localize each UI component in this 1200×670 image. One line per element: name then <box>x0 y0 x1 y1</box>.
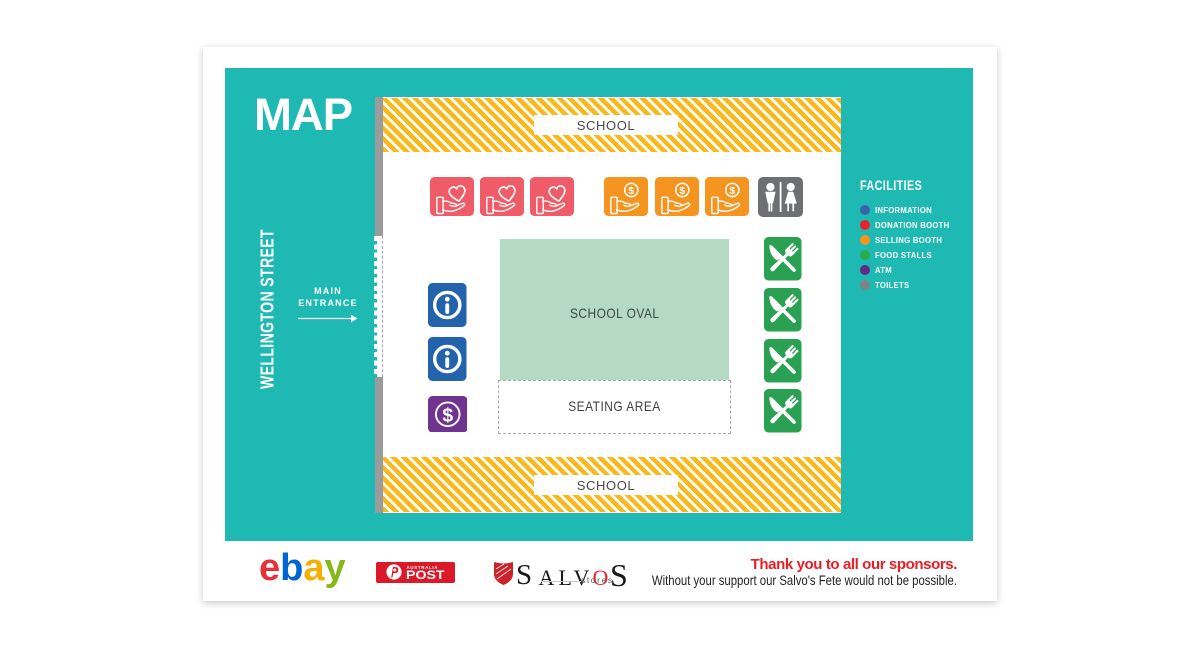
svg-text:$: $ <box>442 404 453 426</box>
